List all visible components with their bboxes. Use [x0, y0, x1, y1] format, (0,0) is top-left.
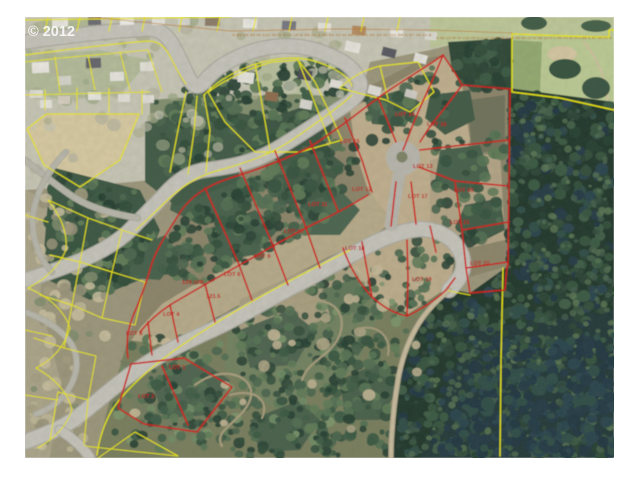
svg-text:© 2012: © 2012	[28, 24, 75, 40]
